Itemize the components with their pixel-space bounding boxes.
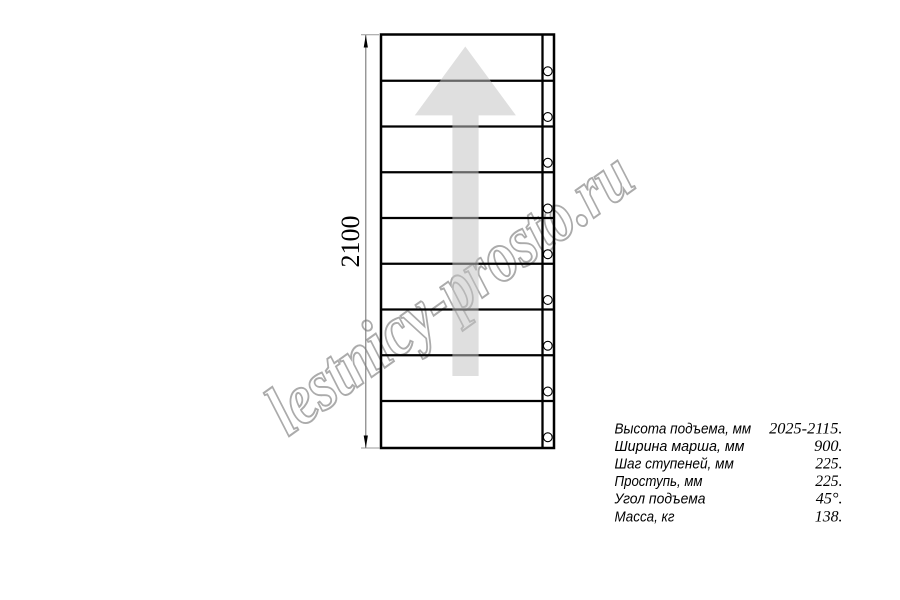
svg-text:45°.: 45°. xyxy=(816,489,843,508)
svg-text:900.: 900. xyxy=(814,436,842,455)
svg-text:225.: 225. xyxy=(815,471,842,490)
svg-text:138.: 138. xyxy=(815,506,843,525)
svg-text:Высота подъема, мм: Высота подъема, мм xyxy=(615,421,752,438)
svg-text:2100: 2100 xyxy=(336,216,365,268)
svg-text:Проступь, мм: Проступь, мм xyxy=(615,473,703,490)
svg-text:225.: 225. xyxy=(815,454,842,473)
svg-text:Шаг ступеней, мм: Шаг ступеней, мм xyxy=(615,456,734,473)
svg-text:Угол подъема: Угол подъема xyxy=(614,491,706,508)
svg-text:2025-2115.: 2025-2115. xyxy=(769,419,842,438)
svg-text:Ширина марша, мм: Ширина марша, мм xyxy=(615,438,745,455)
svg-text:Масса, кг: Масса, кг xyxy=(615,508,676,525)
